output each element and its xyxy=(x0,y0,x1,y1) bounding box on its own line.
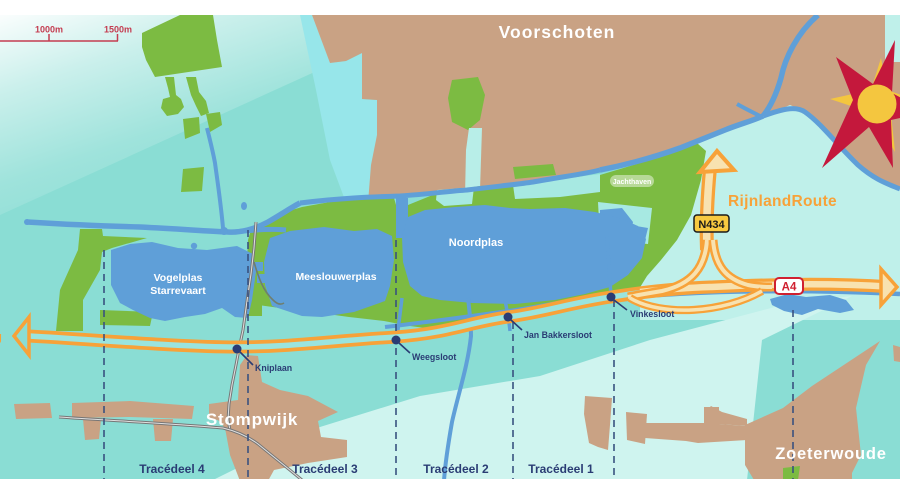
svg-text:A4: A4 xyxy=(782,282,797,294)
svg-text:Jachthaven: Jachthaven xyxy=(613,179,652,186)
svg-text:Vinkesloot: Vinkesloot xyxy=(630,309,674,319)
svg-text:1000m: 1000m xyxy=(35,25,63,35)
svg-text:N434: N434 xyxy=(698,219,725,231)
svg-text:Tracédeel 2: Tracédeel 2 xyxy=(423,462,489,476)
svg-text:Tracédeel 3: Tracédeel 3 xyxy=(292,462,358,476)
svg-text:Noordplas: Noordplas xyxy=(449,237,503,249)
svg-text:1500m: 1500m xyxy=(104,25,132,35)
svg-text:Jan Bakkersloot: Jan Bakkersloot xyxy=(524,330,592,340)
svg-text:RijnlandRoute: RijnlandRoute xyxy=(728,193,837,210)
svg-text:Starrevaart: Starrevaart xyxy=(150,285,206,297)
svg-text:Voorschoten: Voorschoten xyxy=(499,22,616,42)
svg-text:Tracédeel 4: Tracédeel 4 xyxy=(139,462,205,476)
svg-text:Tracédeel 1: Tracédeel 1 xyxy=(528,462,594,476)
svg-text:g: g xyxy=(0,329,2,344)
svg-text:Stompwijk: Stompwijk xyxy=(206,410,298,429)
svg-text:Meeslouwerplas: Meeslouwerplas xyxy=(295,271,376,283)
svg-text:Vogelplas: Vogelplas xyxy=(154,272,203,284)
svg-text:Weegsloot: Weegsloot xyxy=(412,352,456,362)
svg-text:Zoeterwoude: Zoeterwoude xyxy=(775,445,886,463)
svg-text:Kniplaan: Kniplaan xyxy=(255,363,292,373)
